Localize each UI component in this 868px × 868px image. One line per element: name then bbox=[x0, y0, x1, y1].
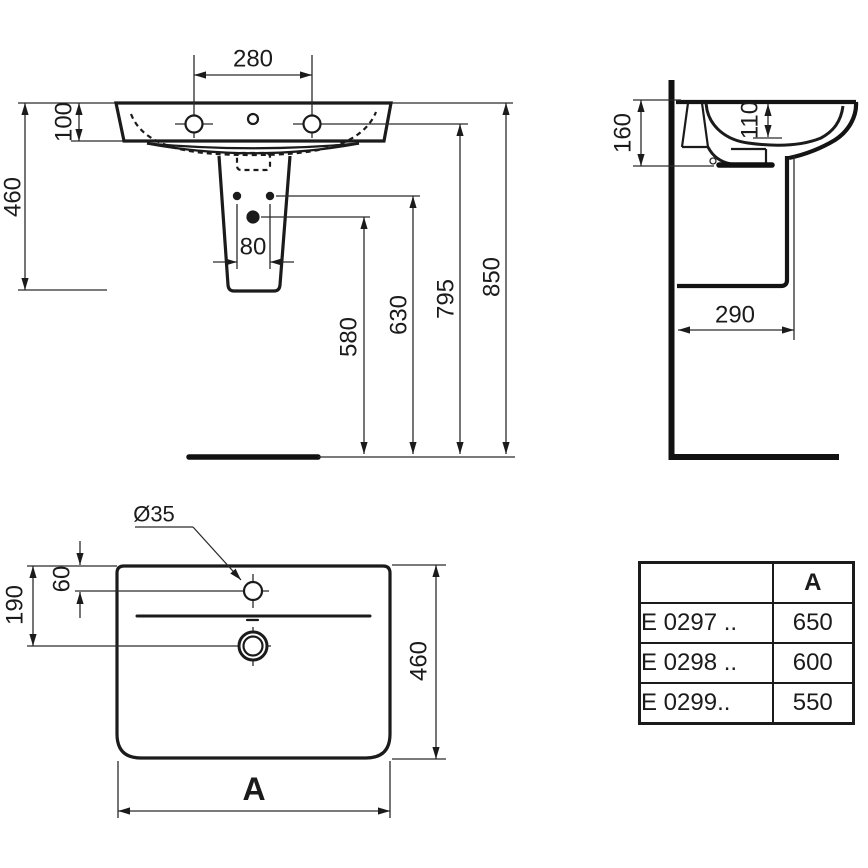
front-view: 280 80 100 460 580 bbox=[0, 46, 515, 458]
dim-tap-offset: 60 bbox=[49, 541, 81, 618]
table-row: E 0297 .. 650 bbox=[640, 603, 854, 643]
dim-label-795: 795 bbox=[433, 279, 460, 319]
dim-plan-width: A bbox=[118, 761, 390, 818]
dim-deck-height: 100 bbox=[51, 102, 80, 142]
table-header-row: A bbox=[640, 563, 854, 604]
back-upstand-left bbox=[682, 103, 688, 147]
dim-drain-height: 580 bbox=[336, 217, 365, 454]
washbasin-technical-drawing: 280 80 100 460 580 bbox=[0, 0, 868, 868]
front-lip-curve bbox=[789, 102, 856, 158]
dim-top-height: 850 bbox=[479, 103, 507, 454]
semi-pedestal-outline bbox=[219, 156, 290, 291]
dim-label-110: 110 bbox=[737, 101, 764, 139]
table-cell-width: 650 bbox=[773, 603, 854, 643]
dim-label-plan-460: 460 bbox=[406, 641, 433, 681]
table-cell-width: 550 bbox=[773, 683, 854, 724]
table-cell-width: 600 bbox=[773, 643, 854, 683]
dim-label-80: 80 bbox=[240, 234, 267, 261]
fixing-hole-right bbox=[266, 192, 274, 200]
side-view: 160 110 290 bbox=[610, 80, 857, 457]
fixing-hole-left bbox=[233, 192, 241, 200]
trap-detail-dot bbox=[710, 158, 716, 164]
dim-label-190: 190 bbox=[2, 585, 29, 625]
table-row: E 0298 .. 600 bbox=[640, 643, 854, 683]
table-cell-model: E 0297 .. bbox=[640, 603, 773, 643]
dim-label-160: 160 bbox=[610, 113, 637, 153]
pedestal-side-profile bbox=[677, 156, 787, 286]
tap-hole-right bbox=[304, 116, 321, 133]
plan-view: Ø35 60 190 460 A bbox=[2, 502, 447, 819]
table-cell-model: E 0298 .. bbox=[640, 643, 773, 683]
dim-label-850: 850 bbox=[479, 257, 506, 297]
dim-label-460: 460 bbox=[0, 177, 27, 217]
dim-label-580: 580 bbox=[336, 317, 363, 357]
table-header-a: A bbox=[773, 563, 854, 604]
dim-plan-depth: 460 bbox=[392, 565, 446, 759]
dim-label-tap-diameter: Ø35 bbox=[133, 502, 175, 527]
dim-label-630: 630 bbox=[386, 295, 413, 335]
dim-back-height: 160 bbox=[610, 100, 715, 166]
bowl-inner-curve bbox=[706, 103, 843, 145]
table-cell-model: E 0299.. bbox=[640, 683, 773, 724]
table-row: E 0299.. 550 bbox=[640, 683, 854, 724]
dim-label-a: A bbox=[242, 771, 265, 807]
dim-basin-pedestal-height: 460 bbox=[0, 103, 27, 290]
table-header-model bbox=[640, 563, 773, 604]
dim-label-100: 100 bbox=[51, 102, 78, 142]
dim-bowl-depth: 110 bbox=[737, 101, 783, 139]
dim-underside-height: 795 bbox=[433, 124, 461, 454]
drain-hole-front bbox=[246, 210, 259, 223]
dim-label-60: 60 bbox=[49, 566, 76, 593]
technical-drawing-canvas: 280 80 100 460 580 bbox=[0, 0, 868, 868]
dim-label-280: 280 bbox=[233, 46, 273, 73]
basin-outline bbox=[116, 103, 391, 141]
tap-hole-left bbox=[186, 116, 203, 133]
plan-tap-hole bbox=[244, 582, 262, 600]
model-width-table: A E 0297 .. 650 E 0298 .. 600 E 0299.. 5… bbox=[638, 561, 855, 725]
dim-tap-spacing: 280 bbox=[194, 46, 312, 76]
dim-fixing-height: 630 bbox=[386, 196, 414, 454]
dim-label-290: 290 bbox=[715, 302, 755, 329]
dim-pedestal-depth: 290 bbox=[678, 156, 794, 340]
